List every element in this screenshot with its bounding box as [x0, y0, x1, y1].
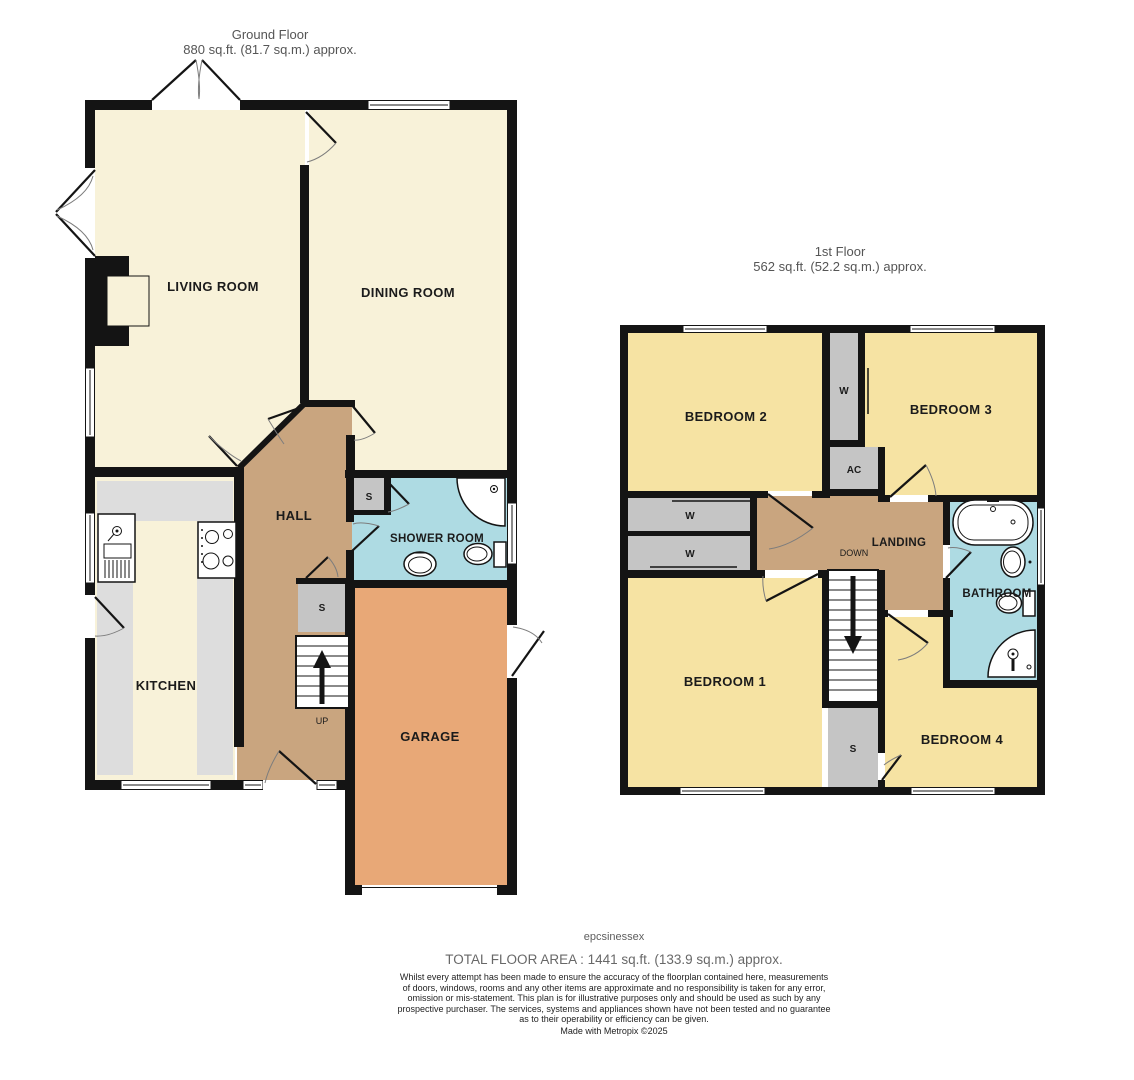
bedroom1-label: BEDROOM 1 [684, 674, 766, 689]
wardrobe1-label: W [685, 511, 695, 522]
garage-door-opening [362, 885, 497, 895]
shower-room-toilet [464, 542, 506, 567]
hall-label: HALL [276, 508, 312, 523]
garage-label: GARAGE [400, 729, 459, 744]
disclaimer-text: Whilst every attempt has been made to en… [396, 972, 832, 1025]
kitchen-label: KITCHEN [136, 678, 197, 693]
store-first-label: S [850, 744, 857, 755]
credit-text: Made with Metropix ©2025 [307, 1026, 921, 1037]
wardrobe-top-label: W [839, 386, 849, 397]
hob-stove [198, 522, 236, 578]
brand-text: epcsinessex [307, 931, 921, 943]
landing-label: LANDING [872, 537, 927, 549]
down-label: DOWN [840, 548, 869, 558]
up-label: UP [316, 716, 329, 726]
front-door-opening [263, 780, 317, 790]
wardrobe2-label: W [685, 549, 695, 560]
bedroom4-label: BEDROOM 4 [921, 732, 1004, 747]
bedroom2-label: BEDROOM 2 [685, 409, 767, 424]
kitchen-sink [98, 514, 135, 582]
ground-floor-plan: LIVING ROOM DINING ROOM HALL SHOWER ROOM… [56, 60, 544, 895]
dining-room-label: DINING ROOM [361, 285, 455, 300]
shower-room-label: SHOWER ROOM [390, 533, 484, 545]
stairs-up [296, 636, 349, 708]
bedroom3-label: BEDROOM 3 [910, 402, 992, 417]
shower-room-basin [404, 552, 436, 576]
french-door-opening [85, 168, 95, 258]
footer: epcsinessex TOTAL FLOOR AREA : 1441 sq.f… [307, 931, 921, 1037]
living-room-label: LIVING ROOM [167, 279, 259, 294]
stairs-down [828, 570, 878, 702]
bathtub [953, 500, 1033, 545]
floorplan-page: Ground Floor 880 sq.ft. (81.7 sq.m.) app… [0, 0, 1134, 1080]
total-floor-area: TOTAL FLOOR AREA : 1441 sq.ft. (133.9 sq… [307, 952, 921, 967]
bathroom-label: BATHROOM [962, 588, 1031, 600]
airing-cupboard-label: AC [847, 465, 861, 476]
store-shower-label: S [366, 492, 373, 503]
kitchen-door-opening [85, 595, 95, 638]
store-hall-label: S [319, 603, 326, 614]
patio-door-opening [152, 100, 240, 110]
floorplan-drawing: LIVING ROOM DINING ROOM HALL SHOWER ROOM… [0, 0, 1134, 1080]
first-floor-plan: BEDROOM 2 BEDROOM 3 BEDROOM 1 BEDROOM 4 … [620, 325, 1045, 795]
